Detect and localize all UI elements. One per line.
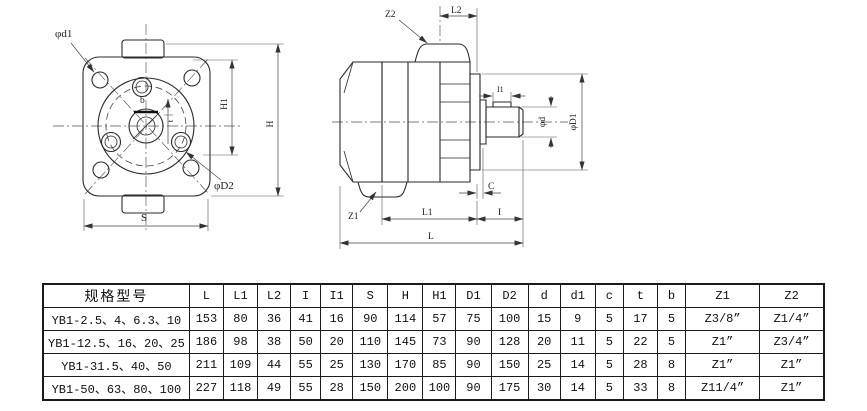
col-header-D1: D1 xyxy=(456,284,491,308)
spec-table-body: YB1-2.5、4、6.3、10153803641169011457751001… xyxy=(43,308,824,401)
top-boss xyxy=(122,40,164,58)
value-cell: Z1” xyxy=(686,354,760,377)
col-header-I1: I1 xyxy=(321,284,353,308)
value-cell: 57 xyxy=(423,308,456,331)
value-cell: 36 xyxy=(258,308,291,331)
value-cell: 33 xyxy=(623,377,657,401)
value-cell: 28 xyxy=(321,377,353,401)
dim-label-phi-d2: φD2 xyxy=(214,180,234,192)
dim-label-i1: I1 xyxy=(497,85,504,94)
spec-table-head: 规格型号LL1L2II1SHH1D1D2dd1ctbZ1Z2 xyxy=(43,284,824,308)
bottom-port-boss xyxy=(358,182,407,197)
dim-label-phi-d1: φd1 xyxy=(55,28,72,40)
callout-z2: Z2 xyxy=(385,10,427,43)
model-cell: YB1-2.5、4、6.3、10 xyxy=(43,308,189,331)
value-cell: Z3/4” xyxy=(760,331,824,354)
value-cell: Z1” xyxy=(686,331,760,354)
model-cell: YB1-50、63、80、100 xyxy=(43,377,189,401)
value-cell: 130 xyxy=(353,354,388,377)
dim-label-l2: L2 xyxy=(451,6,462,16)
value-cell: 211 xyxy=(189,354,223,377)
table-row: YB1-12.5、16、20、2518698385020110145739012… xyxy=(43,331,824,354)
side-view-svg: Z2 L2 I1 φd φD xyxy=(330,0,620,272)
value-cell: 25 xyxy=(528,354,560,377)
dim-label-b: b xyxy=(140,96,145,106)
value-cell: 100 xyxy=(423,377,456,401)
col-header-model: 规格型号 xyxy=(43,284,189,308)
value-cell: 200 xyxy=(388,377,423,401)
value-cell: 20 xyxy=(528,331,560,354)
centerlines-side xyxy=(332,6,568,122)
value-cell: 114 xyxy=(388,308,423,331)
header-row: 规格型号LL1L2II1SHH1D1D2dd1ctbZ1Z2 xyxy=(43,284,824,308)
value-cell: 80 xyxy=(223,308,257,331)
value-cell: 100 xyxy=(491,308,528,331)
value-cell: Z1” xyxy=(760,377,824,401)
dim-label-l: L xyxy=(428,232,434,242)
col-header-H1: H1 xyxy=(423,284,456,308)
col-header-t: t xyxy=(623,284,657,308)
value-cell: 15 xyxy=(528,308,560,331)
value-cell: 5 xyxy=(657,308,685,331)
value-cell: 5 xyxy=(595,308,623,331)
value-cell: 90 xyxy=(456,331,491,354)
drawing-sheet: b t φd1 φD2 H1 H xyxy=(0,0,867,411)
value-cell: 227 xyxy=(189,377,223,401)
dim-label-z1: Z1 xyxy=(348,212,359,222)
value-cell: 186 xyxy=(189,331,223,354)
col-header-c: c xyxy=(595,284,623,308)
value-cell: 38 xyxy=(258,331,291,354)
model-cell: YB1-12.5、16、20、25 xyxy=(43,331,189,354)
dim-label-phi-d1-side: φD1 xyxy=(569,113,579,130)
value-cell: 25 xyxy=(321,354,353,377)
dim-label-c: C xyxy=(488,182,494,192)
dim-l1: L1 xyxy=(382,185,477,225)
value-cell: 5 xyxy=(595,377,623,401)
col-header-H: H xyxy=(388,284,423,308)
col-header-L: L xyxy=(189,284,223,308)
value-cell: 110 xyxy=(353,331,388,354)
value-cell: 5 xyxy=(595,354,623,377)
dim-label-h1: H1 xyxy=(220,98,230,110)
table-row: YB1-31.5、40、5021110944552513017085901502… xyxy=(43,354,824,377)
value-cell: 75 xyxy=(456,308,491,331)
col-header-S: S xyxy=(353,284,388,308)
dim-label-z2: Z2 xyxy=(385,10,396,20)
dim-i: I xyxy=(477,140,523,247)
value-cell: 8 xyxy=(657,377,685,401)
value-cell: 5 xyxy=(595,331,623,354)
value-cell: 90 xyxy=(456,377,491,401)
callout-phi-d1: φd1 xyxy=(55,28,94,72)
value-cell: Z1” xyxy=(760,354,824,377)
value-cell: 20 xyxy=(321,331,353,354)
value-cell: Z1/4” xyxy=(760,308,824,331)
value-cell: 5 xyxy=(657,331,685,354)
value-cell: Z3/8” xyxy=(686,308,760,331)
value-cell: 109 xyxy=(223,354,257,377)
col-header-D2: D2 xyxy=(491,284,528,308)
dim-label-s: S xyxy=(141,212,147,224)
centerlines xyxy=(53,24,243,232)
side-view-drawing: Z2 L2 I1 φd φD xyxy=(330,0,620,272)
shaft-key xyxy=(493,102,511,107)
col-header-d1: d1 xyxy=(560,284,595,308)
value-cell: 14 xyxy=(560,377,595,401)
col-header-d: d xyxy=(528,284,560,308)
dim-label-phi-d: φd xyxy=(538,117,548,127)
value-cell: 22 xyxy=(623,331,657,354)
value-cell: 16 xyxy=(321,308,353,331)
front-view-drawing: b t φd1 φD2 H1 H xyxy=(25,0,335,272)
col-header-I: I xyxy=(291,284,321,308)
model-cell: YB1-31.5、40、50 xyxy=(43,354,189,377)
value-cell: 98 xyxy=(223,331,257,354)
value-cell: 50 xyxy=(291,331,321,354)
value-cell: 85 xyxy=(423,354,456,377)
value-cell: 55 xyxy=(291,377,321,401)
value-cell: 28 xyxy=(623,354,657,377)
value-cell: 14 xyxy=(560,354,595,377)
value-cell: 17 xyxy=(623,308,657,331)
bottom-boss xyxy=(122,195,164,213)
col-header-Z2: Z2 xyxy=(760,284,824,308)
value-cell: 73 xyxy=(423,331,456,354)
col-header-Z1: Z1 xyxy=(686,284,760,308)
value-cell: 41 xyxy=(291,308,321,331)
value-cell: Z11/4” xyxy=(686,377,760,401)
top-port-boss xyxy=(415,44,470,62)
value-cell: 90 xyxy=(353,308,388,331)
value-cell: 153 xyxy=(189,308,223,331)
value-cell: 49 xyxy=(258,377,291,401)
value-cell: 9 xyxy=(560,308,595,331)
value-cell: 150 xyxy=(353,377,388,401)
table-row: YB1-2.5、4、6.3、10153803641169011457751001… xyxy=(43,308,824,331)
dim-i1: I1 xyxy=(479,85,525,101)
value-cell: 175 xyxy=(491,377,528,401)
dim-h: H xyxy=(166,44,284,196)
value-cell: 44 xyxy=(258,354,291,377)
pump-body xyxy=(358,44,470,197)
dim-label-i: I xyxy=(498,208,501,218)
table-row: YB1-50、63、80、100227118495528150200100901… xyxy=(43,377,824,401)
value-cell: 118 xyxy=(223,377,257,401)
col-header-b: b xyxy=(657,284,685,308)
value-cell: 150 xyxy=(491,354,528,377)
value-cell: 8 xyxy=(657,354,685,377)
front-view-svg: b t φd1 φD2 H1 H xyxy=(25,0,335,272)
value-cell: 11 xyxy=(560,331,595,354)
dim-label-h: H xyxy=(266,120,276,127)
value-cell: 128 xyxy=(491,331,528,354)
col-header-L1: L1 xyxy=(223,284,257,308)
spec-table: 规格型号LL1L2II1SHH1D1D2dd1ctbZ1Z2 YB1-2.5、4… xyxy=(42,283,825,401)
value-cell: 145 xyxy=(388,331,423,354)
dim-label-l1: L1 xyxy=(422,208,433,218)
dim-h1: H1 xyxy=(193,60,238,155)
value-cell: 170 xyxy=(388,354,423,377)
value-cell: 30 xyxy=(528,377,560,401)
dim-label-t: t xyxy=(166,119,175,122)
value-cell: 90 xyxy=(456,354,491,377)
col-header-L2: L2 xyxy=(258,284,291,308)
value-cell: 55 xyxy=(291,354,321,377)
